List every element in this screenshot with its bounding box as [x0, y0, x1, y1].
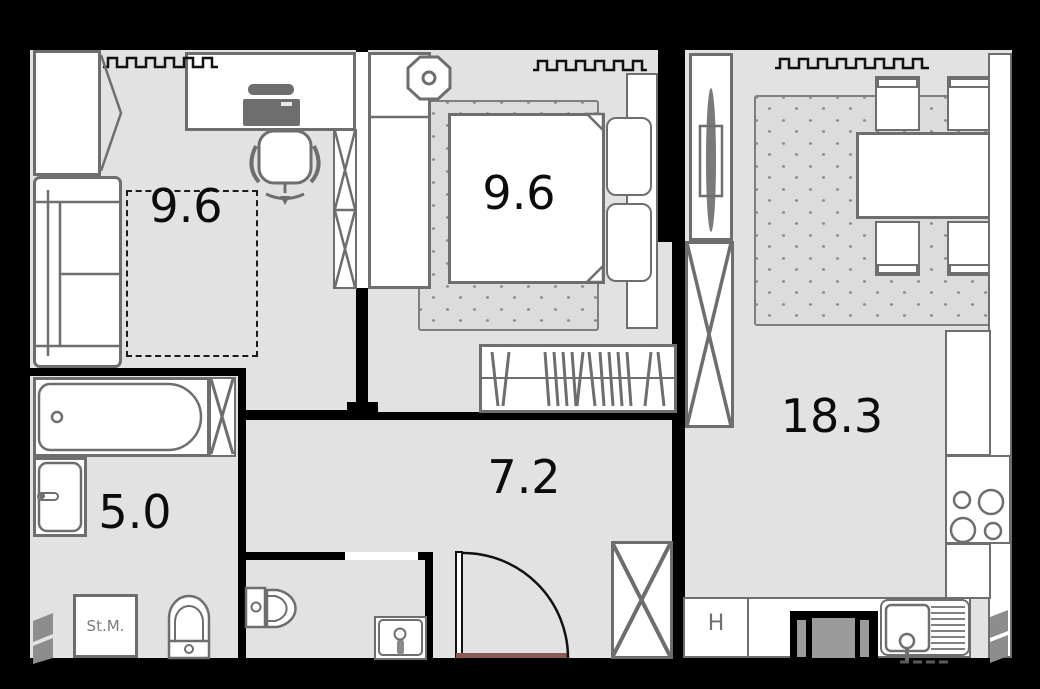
office-chair-icon	[251, 131, 318, 205]
wc-sink-icon	[379, 620, 422, 655]
hall-wardrobe-x	[613, 544, 670, 656]
entrance-door-arc	[463, 553, 568, 658]
wardrobe-door-swing	[101, 55, 121, 171]
mirror-icon	[700, 88, 722, 232]
laptop-icon	[243, 84, 300, 126]
chair-back-rails	[878, 79, 989, 273]
cooktop-burners	[951, 490, 1003, 542]
sink-icon	[886, 605, 965, 663]
shelf-x-lines	[334, 131, 356, 287]
ceiling-lamp-icon	[408, 57, 450, 99]
toilet-icon	[246, 588, 296, 627]
sofa-lines	[36, 190, 119, 356]
cabinet-x-lines	[687, 243, 731, 426]
floor-plan: 9.6 9.6 18.3 7.2 5.0 St.M. H	[0, 0, 1040, 689]
toilet-icon	[169, 596, 209, 658]
bathtub-basin	[39, 384, 201, 450]
shaft-hatch-icon	[990, 610, 1008, 663]
bath-panel-x	[211, 379, 233, 454]
radiator-icon	[103, 58, 929, 70]
shaft-hatch-icon	[33, 613, 53, 664]
oven-detail	[797, 618, 869, 658]
bed-fold-corners	[587, 114, 603, 282]
plan-glyphs	[0, 0, 1040, 689]
hanger-rail-lines	[481, 352, 675, 406]
entrance-threshold	[456, 653, 568, 658]
washbasin-bowl	[38, 463, 81, 531]
